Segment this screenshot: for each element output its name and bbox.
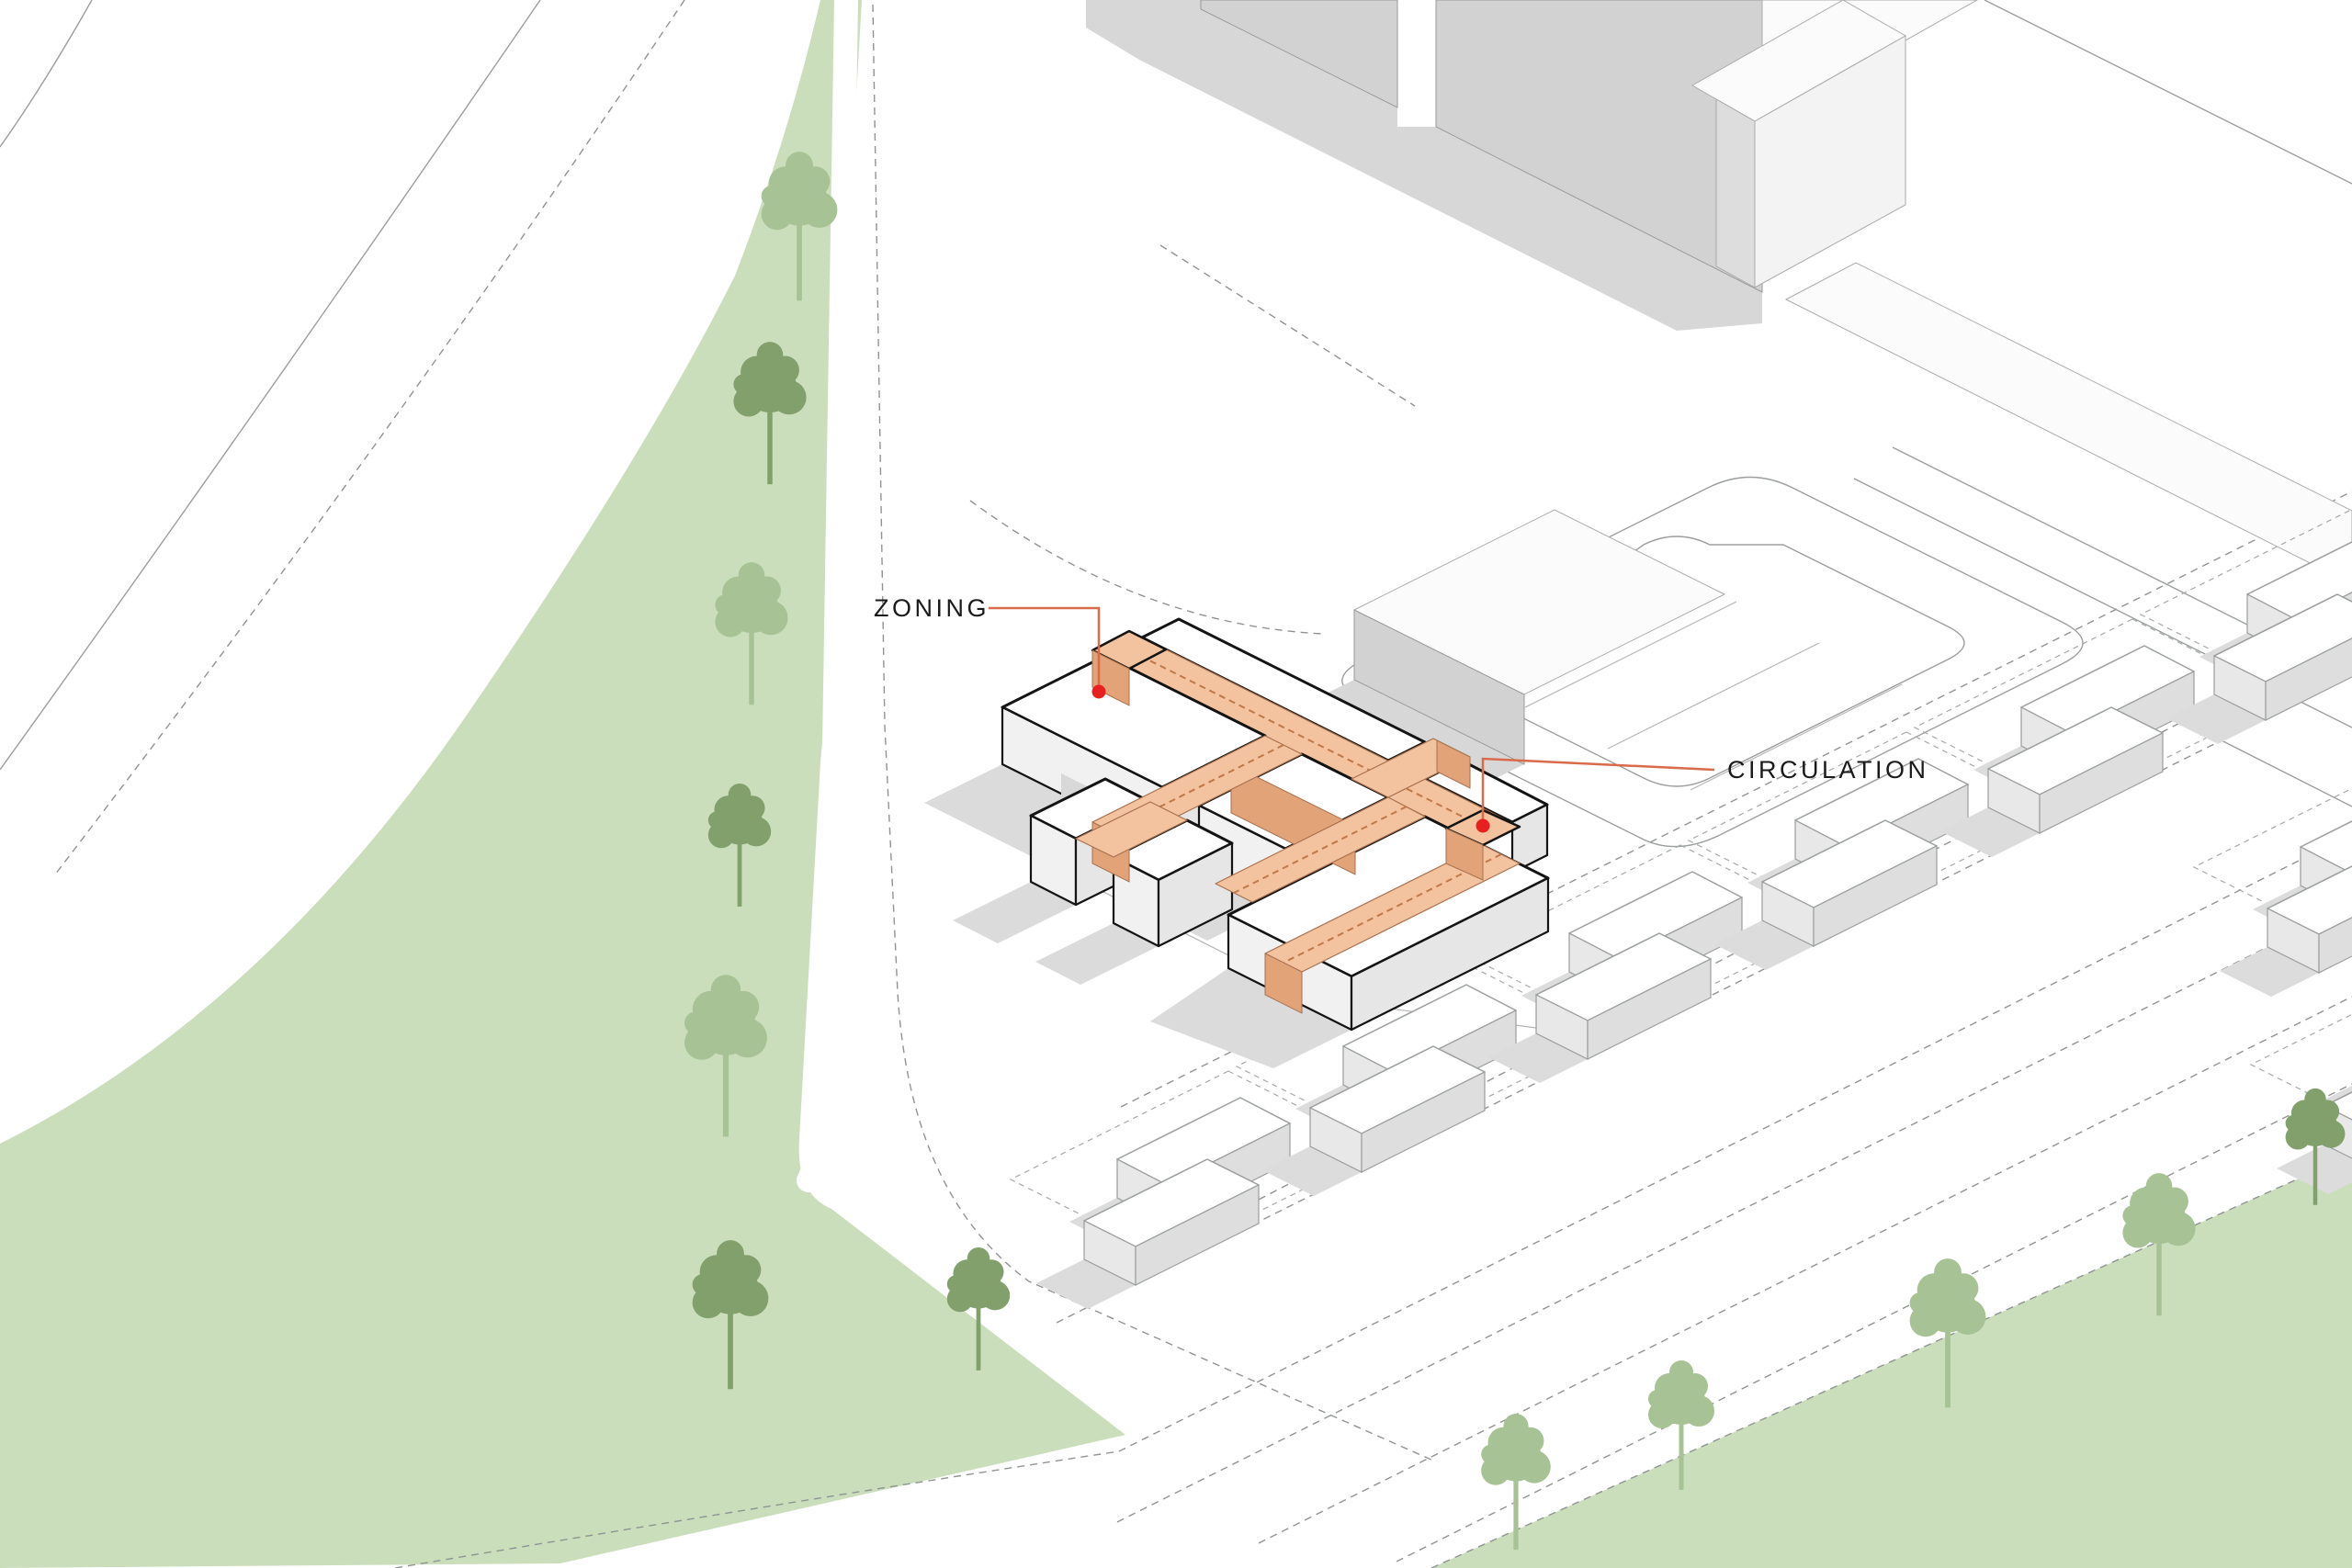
circulation-label: CIRCULATION bbox=[1727, 756, 1929, 784]
context-topright-building bbox=[1692, 0, 2352, 584]
circulation-marker-dot bbox=[1476, 819, 1490, 833]
green-wedge bbox=[0, 0, 1125, 1568]
site-axonometric-diagram: ZONING CIRCULATION bbox=[0, 0, 2352, 1568]
zoning-label: ZONING bbox=[874, 594, 989, 622]
zoning-marker-dot bbox=[1092, 685, 1106, 699]
